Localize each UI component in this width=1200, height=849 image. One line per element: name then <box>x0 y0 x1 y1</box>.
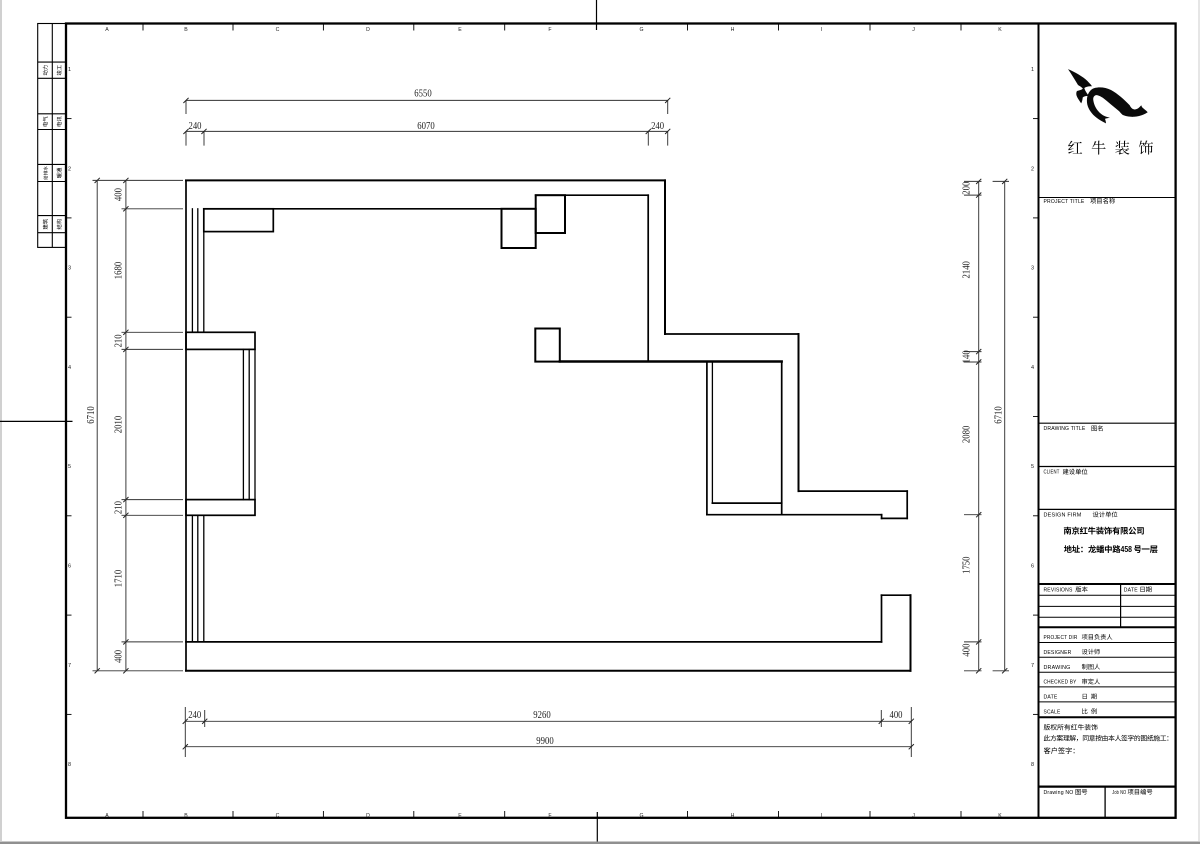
svg-text:DESIGNER: DESIGNER <box>1044 650 1072 656</box>
svg-text:1: 1 <box>1031 67 1034 73</box>
svg-text:SCALE: SCALE <box>1044 709 1061 715</box>
svg-text:3: 3 <box>68 266 71 272</box>
svg-text:400: 400 <box>890 710 903 721</box>
svg-text:400: 400 <box>114 650 125 663</box>
svg-text:Job NO: Job NO <box>1112 790 1126 796</box>
svg-text:6710: 6710 <box>994 406 1005 423</box>
svg-text:5: 5 <box>68 464 71 470</box>
svg-text:210: 210 <box>114 501 125 514</box>
svg-text:6710: 6710 <box>86 406 97 423</box>
svg-text:H: H <box>731 27 735 33</box>
svg-text:B: B <box>184 27 188 33</box>
svg-text:F: F <box>548 813 551 819</box>
svg-text:200: 200 <box>962 182 973 195</box>
svg-text:I: I <box>821 813 822 819</box>
svg-text:G: G <box>639 27 643 33</box>
svg-text:3: 3 <box>1031 266 1034 272</box>
svg-text:D: D <box>366 27 370 33</box>
svg-text:DATE: DATE <box>1044 694 1058 700</box>
svg-text:B: B <box>184 813 188 819</box>
svg-text:C: C <box>276 27 280 33</box>
svg-text:458: 458 <box>1121 544 1133 554</box>
svg-text:J: J <box>912 27 915 33</box>
svg-text:9260: 9260 <box>533 710 550 721</box>
svg-text:D: D <box>366 813 370 819</box>
svg-text:2140: 2140 <box>962 261 973 278</box>
svg-text:2: 2 <box>1031 166 1034 172</box>
svg-text:6: 6 <box>68 564 71 570</box>
svg-text:9900: 9900 <box>536 736 553 747</box>
svg-text:A: A <box>105 813 109 819</box>
svg-text:140: 140 <box>962 350 973 363</box>
svg-text:I: I <box>821 27 822 33</box>
svg-text:400: 400 <box>114 188 125 201</box>
svg-text:DATE: DATE <box>1124 587 1138 593</box>
svg-text:4: 4 <box>68 365 71 371</box>
svg-text:240: 240 <box>651 121 664 132</box>
svg-text:E: E <box>458 813 462 819</box>
svg-text:6: 6 <box>1031 564 1034 570</box>
svg-text:K: K <box>998 27 1002 33</box>
svg-text:1680: 1680 <box>114 262 125 279</box>
svg-text:E: E <box>458 27 462 33</box>
svg-text:DRAWING: DRAWING <box>1044 665 1071 671</box>
svg-text:PROJECT TITLE: PROJECT TITLE <box>1044 199 1085 205</box>
svg-text:G: G <box>639 813 643 819</box>
svg-text:210: 210 <box>114 334 125 347</box>
svg-text:2: 2 <box>68 166 71 172</box>
svg-text:PROJECT DIR: PROJECT DIR <box>1044 635 1078 641</box>
svg-text:H: H <box>731 813 735 819</box>
svg-text:CLIENT: CLIENT <box>1044 470 1060 476</box>
svg-text:F: F <box>548 27 551 33</box>
svg-text:REVISIONS: REVISIONS <box>1044 587 1073 593</box>
svg-text:240: 240 <box>188 710 201 721</box>
svg-text:1710: 1710 <box>114 570 125 587</box>
svg-text:6550: 6550 <box>414 89 431 100</box>
svg-text:7: 7 <box>1031 663 1034 669</box>
svg-text:K: K <box>998 813 1002 819</box>
svg-text:CHECKED BY: CHECKED BY <box>1044 680 1077 686</box>
svg-text:A: A <box>105 27 109 33</box>
svg-text:5: 5 <box>1031 464 1034 470</box>
svg-text:6070: 6070 <box>417 121 434 132</box>
svg-text:400: 400 <box>962 644 973 657</box>
svg-text:7: 7 <box>68 663 71 669</box>
svg-text:DRAWING TITLE: DRAWING TITLE <box>1044 426 1086 432</box>
svg-text:2010: 2010 <box>114 416 125 433</box>
svg-text:Drawing NO: Drawing NO <box>1044 790 1074 796</box>
svg-text:8: 8 <box>1031 762 1034 768</box>
svg-text:8: 8 <box>68 762 71 768</box>
svg-text:2080: 2080 <box>962 426 973 443</box>
svg-text:DESIGN FIRM: DESIGN FIRM <box>1044 513 1082 519</box>
svg-text:1750: 1750 <box>962 557 973 574</box>
svg-text:C: C <box>276 813 280 819</box>
svg-text:4: 4 <box>1031 365 1034 371</box>
svg-text:240: 240 <box>189 121 202 132</box>
svg-text:1: 1 <box>68 67 71 73</box>
svg-text:J: J <box>912 813 915 819</box>
